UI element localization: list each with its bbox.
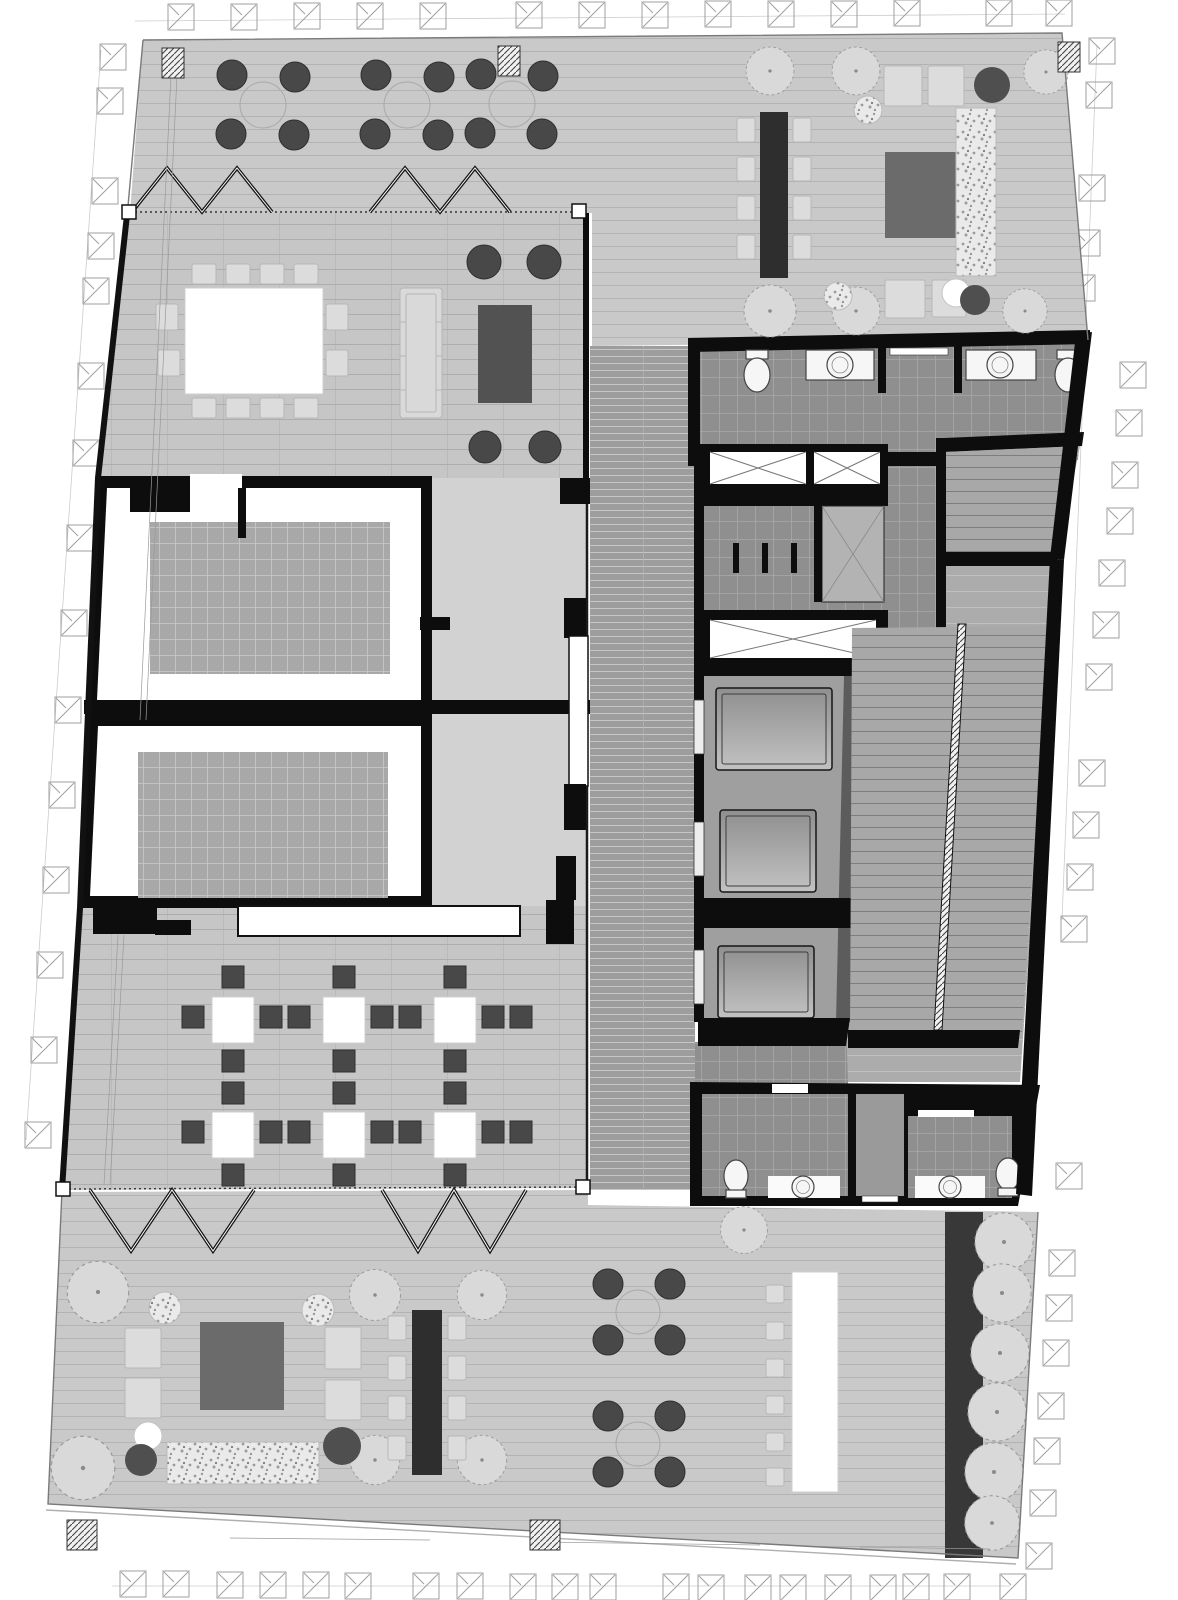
pouf: [974, 67, 1010, 103]
hatched-column: [1058, 42, 1080, 72]
lounge-chair: [125, 1378, 161, 1418]
lounge-chair: [884, 66, 922, 106]
tree: [832, 47, 880, 95]
sink-icon: [792, 1176, 814, 1198]
toilet-icon: [724, 1160, 748, 1198]
gravel-planter-strip: [956, 108, 996, 276]
glass-wall-post: [572, 204, 586, 218]
sink-icon: [987, 352, 1013, 378]
lounge-chair: [928, 66, 964, 106]
glass-wall-post: [122, 205, 136, 219]
meeting-room-a-carpet: [150, 522, 390, 674]
hatched-column: [498, 46, 520, 76]
coffee-table: [478, 305, 532, 403]
round-lounge-chair: [529, 431, 561, 463]
tree: [746, 47, 794, 95]
gravel-disc: [302, 1294, 334, 1326]
hatched-column: [67, 1520, 97, 1550]
core-corridor-strip: [590, 346, 695, 1190]
tree: [67, 1261, 128, 1322]
sink-icon: [827, 352, 853, 378]
round-lounge-chair: [527, 245, 561, 279]
hatched-column: [162, 48, 184, 78]
meeting-room-a: [88, 474, 432, 712]
gravel-planter-strip: [167, 1442, 319, 1484]
tree: [350, 1270, 401, 1321]
elevator-car-1: [716, 688, 832, 770]
core-tile-e: [695, 1042, 848, 1086]
sofa: [400, 288, 442, 418]
conference-table: [185, 288, 323, 394]
core-tile-c: [695, 506, 822, 612]
meeting-room-b-carpet: [138, 752, 388, 898]
south-terrace-deck: [48, 1190, 1038, 1558]
meeting-room-a-door: [190, 474, 242, 488]
round-lounge-chair: [467, 245, 501, 279]
tree: [721, 1207, 768, 1254]
toilet-icon: [744, 350, 770, 392]
lounge-chair: [885, 280, 925, 318]
column-symbols-bottom: [120, 1571, 1026, 1600]
pouf: [323, 1427, 361, 1465]
tree: [457, 1270, 506, 1319]
tree: [744, 285, 796, 337]
hatched-column: [530, 1520, 560, 1550]
floor-plan-canvas: [0, 0, 1178, 1600]
elevator-door-3: [694, 950, 704, 1004]
glass-wall-post: [576, 1180, 590, 1194]
elevator-door-1: [694, 700, 704, 754]
elevator-door-2: [694, 822, 704, 876]
gravel-disc: [824, 282, 852, 310]
north-lounge-rug: [885, 152, 963, 238]
elevator-car-2: [720, 810, 816, 892]
core-door-opening: [569, 636, 588, 786]
round-lounge-chair: [469, 431, 501, 463]
floor-plan-page: [0, 0, 1178, 1600]
gravel-disc: [854, 96, 882, 124]
pouf: [125, 1444, 157, 1476]
stair-lobby: [848, 624, 1048, 1048]
lounge-chair: [325, 1327, 361, 1369]
tree: [1003, 289, 1047, 333]
wc-lower: [690, 1082, 1040, 1206]
south-lounge-rug: [200, 1322, 284, 1410]
west-corridor-floor: [432, 478, 586, 908]
lounge-chair: [325, 1380, 361, 1420]
mid-wall-between-rooms: [84, 700, 590, 714]
gravel-disc: [149, 1292, 181, 1324]
sink-icon: [939, 1176, 961, 1198]
elevator-car-3: [718, 946, 814, 1018]
lounge-chair: [125, 1328, 161, 1368]
pouf: [960, 285, 990, 315]
tree: [51, 1436, 114, 1499]
workshop-north-white-band: [238, 906, 520, 936]
glass-wall-post: [56, 1182, 70, 1196]
